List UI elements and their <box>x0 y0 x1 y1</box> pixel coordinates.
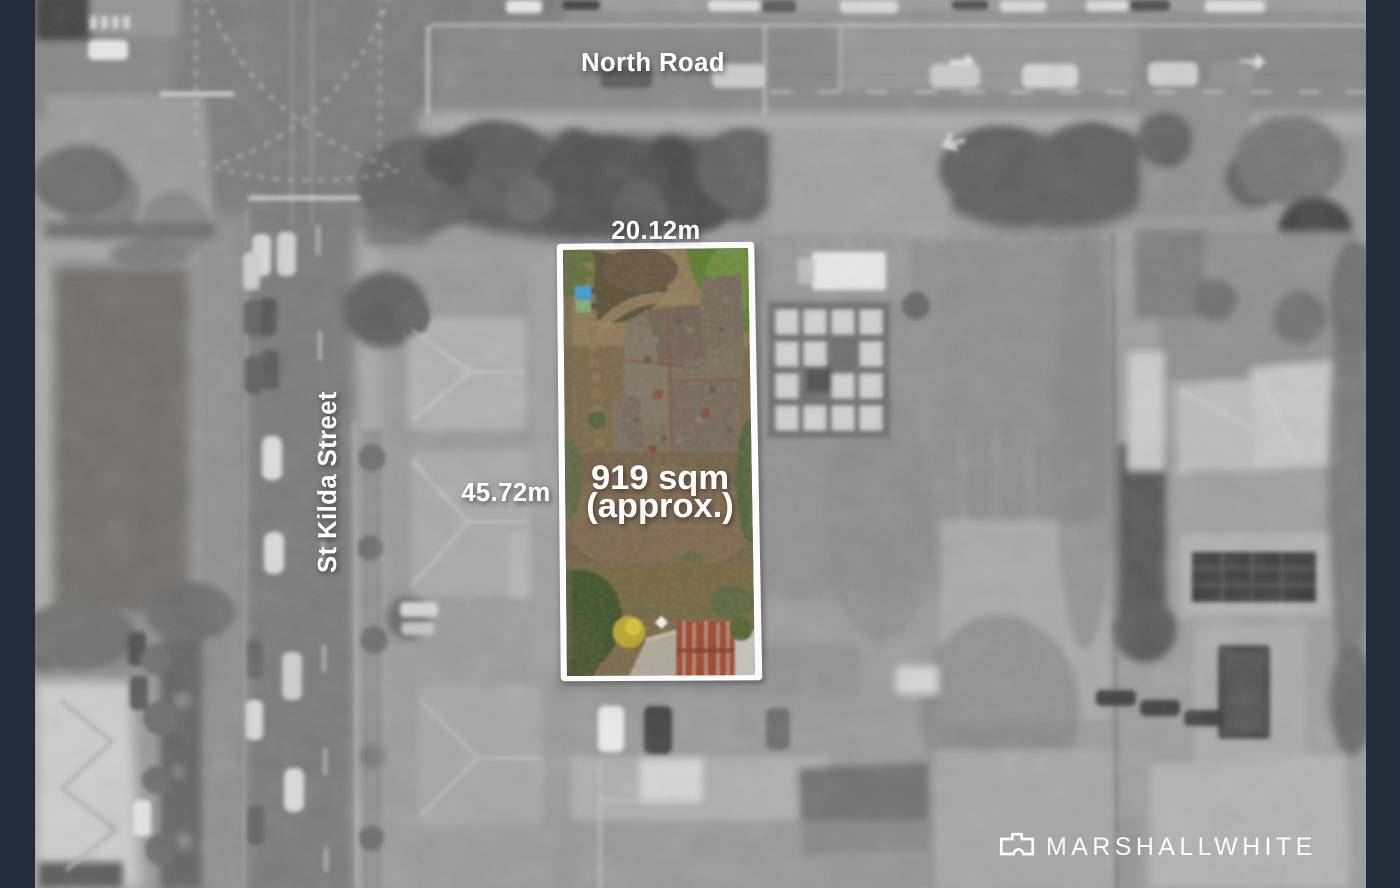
svg-text:(approx.): (approx.) <box>586 487 734 525</box>
svg-text:45.72m: 45.72m <box>461 479 551 507</box>
svg-text:St Kilda Street: St Kilda Street <box>314 391 342 573</box>
svg-text:MARSHALLWHITE: MARSHALLWHITE <box>1046 833 1317 861</box>
svg-text:20.12m: 20.12m <box>611 217 701 245</box>
svg-text:North Road: North Road <box>581 49 725 77</box>
